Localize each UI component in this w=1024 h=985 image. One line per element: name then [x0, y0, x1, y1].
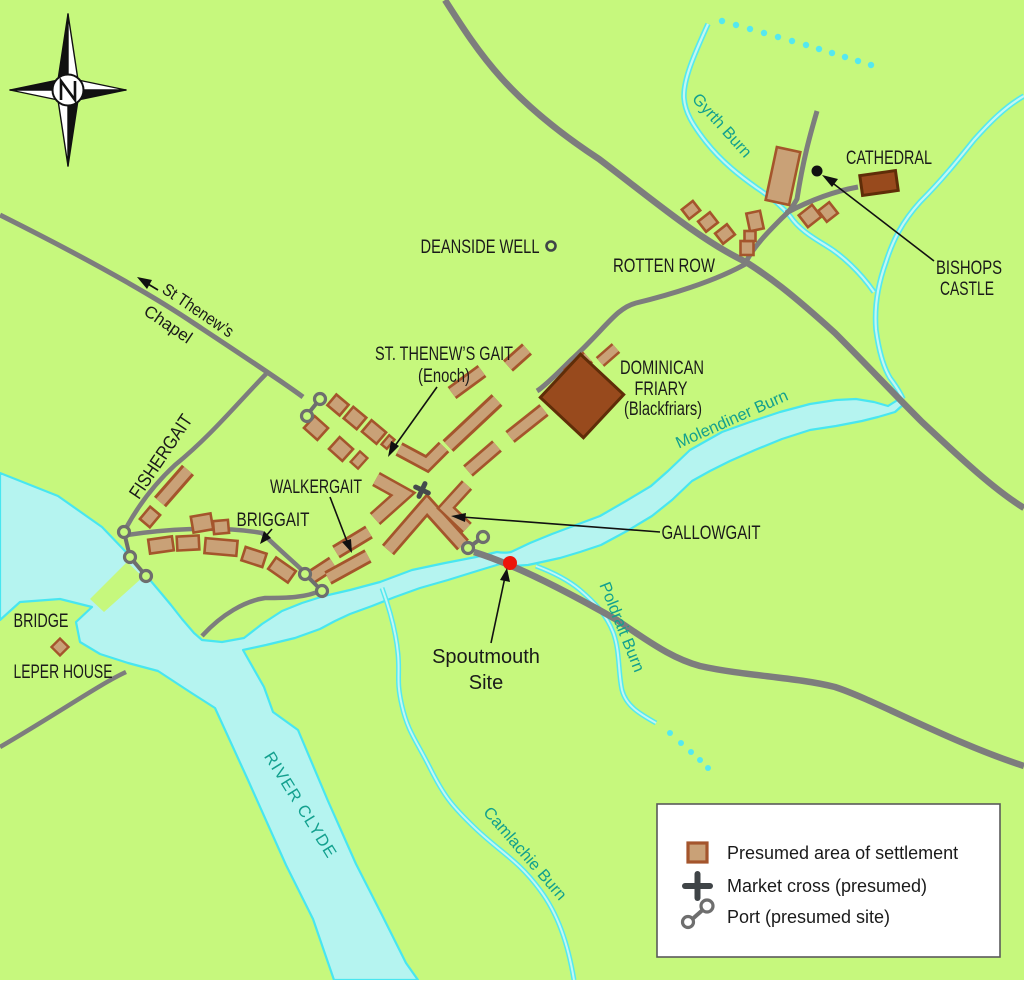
- svg-text:DOMINICAN: DOMINICAN: [620, 358, 704, 379]
- svg-text:Market cross (presumed): Market cross (presumed): [727, 876, 927, 896]
- svg-text:ROTTEN ROW: ROTTEN ROW: [613, 256, 715, 277]
- svg-text:Port (presumed site): Port (presumed site): [727, 907, 890, 927]
- svg-text:Presumed area of settlement: Presumed area of settlement: [727, 843, 958, 863]
- svg-text:CASTLE: CASTLE: [940, 279, 994, 300]
- svg-text:CATHEDRAL: CATHEDRAL: [846, 148, 932, 169]
- svg-text:BRIGGAIT: BRIGGAIT: [237, 510, 310, 531]
- svg-text:FRIARY: FRIARY: [635, 379, 688, 400]
- svg-text:BISHOPS: BISHOPS: [936, 258, 1002, 279]
- svg-text:(Blackfriars): (Blackfriars): [624, 399, 702, 420]
- svg-text:LEPER HOUSE: LEPER HOUSE: [14, 662, 113, 683]
- svg-text:WALKERGAIT: WALKERGAIT: [270, 477, 362, 498]
- svg-text:BRIDGE: BRIDGE: [14, 611, 69, 632]
- svg-text:Spoutmouth: Spoutmouth: [432, 646, 540, 668]
- svg-text:ST. THENEW’S GAIT: ST. THENEW’S GAIT: [375, 344, 513, 365]
- svg-text:(Enoch): (Enoch): [418, 366, 470, 387]
- svg-text:Site: Site: [469, 672, 503, 694]
- svg-text:DEANSIDE WELL: DEANSIDE WELL: [421, 237, 540, 258]
- svg-text:GALLOWGAIT: GALLOWGAIT: [662, 523, 761, 544]
